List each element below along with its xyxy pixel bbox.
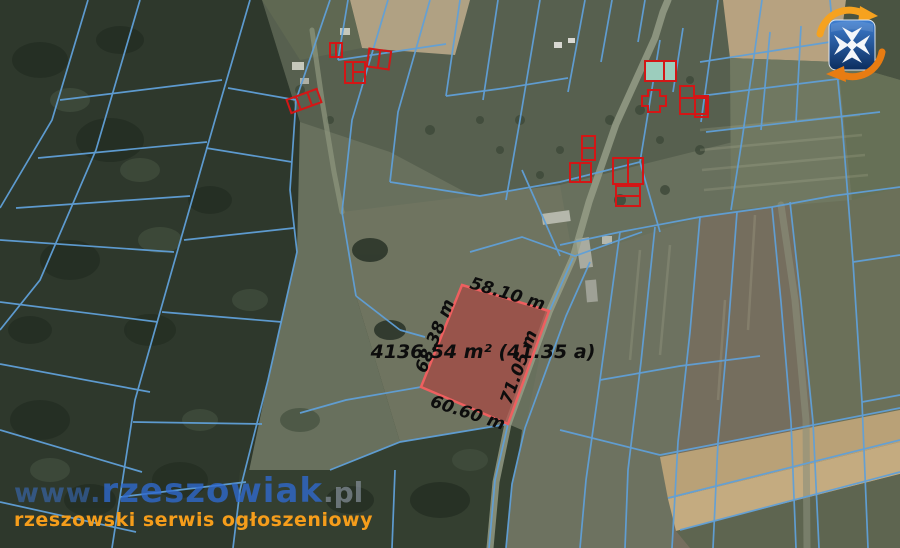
watermark-domain: rzeszowiak xyxy=(101,474,323,508)
rzeszowiak-logo xyxy=(812,2,892,88)
watermark-tagline: rzeszowski serwis ogłoszeniowy xyxy=(14,511,373,530)
watermark-tld: .pl xyxy=(323,479,363,507)
watermark-url: www.rzeszowiak.pl xyxy=(14,474,373,508)
watermark-www: www. xyxy=(14,480,101,507)
building-outline xyxy=(645,61,676,81)
parcel-area-label: 4136.54 m² (41.35 a) xyxy=(370,341,596,363)
aerial-map: 58.10 m 68.38 m 71.05 m 60.60 m 4136.54 … xyxy=(0,0,900,548)
watermark: www.rzeszowiak.pl rzeszowski serwis ogło… xyxy=(14,474,373,530)
map-viewport: 58.10 m 68.38 m 71.05 m 60.60 m 4136.54 … xyxy=(0,0,900,548)
